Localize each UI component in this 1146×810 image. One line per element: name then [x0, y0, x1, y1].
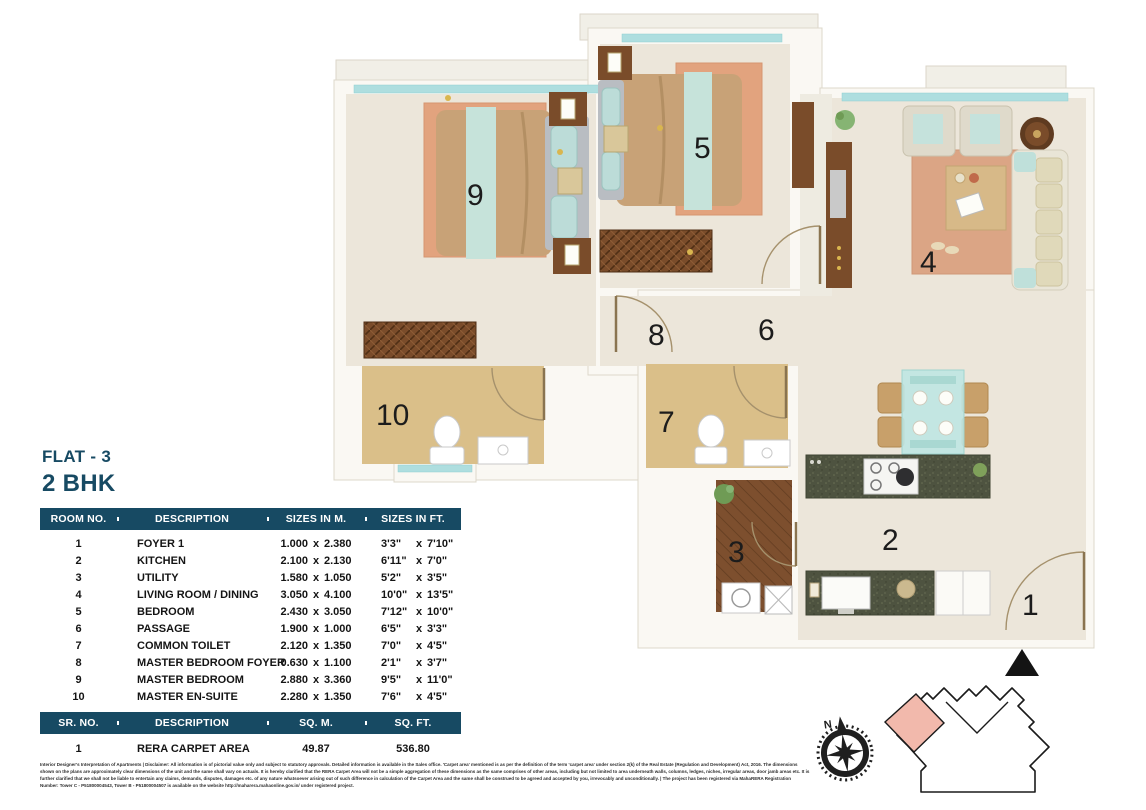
x-separator: x — [411, 555, 427, 567]
cell-description: LIVING ROOM / DINING — [117, 589, 267, 601]
room-label-master-ensuite: 10 — [376, 399, 409, 432]
room-label-bedroom: 5 — [694, 132, 711, 165]
x-separator: x — [308, 572, 324, 584]
cell-description: COMMON TOILET — [117, 640, 267, 652]
floor-plan-page: 9 5 4 8 6 10 7 2 3 1 N — [0, 0, 1146, 810]
cell-room-no: 7 — [40, 640, 117, 652]
x-separator: x — [411, 623, 427, 635]
x-separator: x — [308, 640, 324, 652]
cell-m1: 1.900 — [272, 623, 308, 635]
cell-f2: 3'7" — [427, 657, 461, 669]
cell-description: PASSAGE — [117, 623, 267, 635]
dining-set — [878, 370, 988, 454]
disclaimer-line: Interior Designer's Interpretation of Ap… — [40, 761, 1110, 768]
flat-type-label: 2 BHK — [42, 470, 116, 498]
x-separator: x — [308, 589, 324, 601]
cell-m2: 1.350 — [324, 691, 360, 703]
cell-description: MASTER BEDROOM FOYER — [117, 657, 267, 669]
cell-sr-no: 1 — [40, 743, 117, 755]
cell-f1: 7'12" — [381, 606, 411, 618]
room-label-master-bedroom: 9 — [467, 179, 484, 212]
cell-m2: 1.100 — [324, 657, 360, 669]
cell-sq-ft: 536.80 — [365, 743, 461, 755]
cell-f2: 3'3" — [427, 623, 461, 635]
x-separator: x — [308, 538, 324, 550]
table-row: 1 RERA CARPET AREA 49.87 536.80 — [40, 739, 461, 759]
x-separator: x — [308, 657, 324, 669]
area-table-body: 1 RERA CARPET AREA 49.87 536.80 — [40, 739, 461, 759]
room-label-utility: 3 — [728, 536, 745, 569]
cell-f2: 4'5" — [427, 640, 461, 652]
header-sr-no: SR. NO. — [40, 717, 117, 729]
cell-f1: 7'6" — [381, 691, 411, 703]
x-separator: x — [308, 606, 324, 618]
cell-room-no: 1 — [40, 538, 117, 550]
cell-f2: 11'0" — [427, 674, 461, 686]
cell-m2: 3.050 — [324, 606, 360, 618]
cell-sq-m: 49.87 — [267, 743, 365, 755]
cell-description: FOYER 1 — [117, 538, 267, 550]
compass-north-label: N — [823, 719, 833, 732]
table-row: 5 BEDROOM 2.430x3.050 7'12"x10'0" — [40, 603, 461, 620]
master-bed — [424, 92, 591, 274]
cell-f2: 4'5" — [427, 691, 461, 703]
cell-area-description: RERA CARPET AREA — [117, 743, 267, 755]
x-separator: x — [411, 538, 427, 550]
cell-m1: 1.000 — [272, 538, 308, 550]
cell-m1: 2.430 — [272, 606, 308, 618]
cell-m2: 4.100 — [324, 589, 360, 601]
rooms-table-body: 1 FOYER 1 1.000x2.380 3'3"x7'10" 2 KITCH… — [40, 535, 461, 705]
table-row: 7 COMMON TOILET 2.120x1.350 7'0"x4'5" — [40, 637, 461, 654]
cell-m1: 2.880 — [272, 674, 308, 686]
cell-f2: 10'0" — [427, 606, 461, 618]
cell-f1: 3'3" — [381, 538, 411, 550]
cell-m2: 3.360 — [324, 674, 360, 686]
header-area-description: DESCRIPTION — [117, 717, 267, 729]
table-row: 4 LIVING ROOM / DINING 3.050x4.100 10'0"… — [40, 586, 461, 603]
header-description: DESCRIPTION — [117, 513, 267, 525]
cell-f1: 9'5" — [381, 674, 411, 686]
x-separator: x — [411, 691, 427, 703]
cell-description: UTILITY — [117, 572, 267, 584]
rooms-table: ROOM NO. DESCRIPTION SIZES IN M. SIZES I… — [40, 508, 461, 705]
cell-room-no: 5 — [40, 606, 117, 618]
cell-m1: 2.280 — [272, 691, 308, 703]
table-row: 1 FOYER 1 1.000x2.380 3'3"x7'10" — [40, 535, 461, 552]
x-separator: x — [411, 640, 427, 652]
cell-f1: 10'0" — [381, 589, 411, 601]
header-sizes-ft: SIZES IN FT. — [365, 513, 461, 525]
area-table-header: SR. NO. DESCRIPTION SQ. M. SQ. FT. — [40, 712, 461, 734]
cell-room-no: 9 — [40, 674, 117, 686]
cell-m2: 1.050 — [324, 572, 360, 584]
cell-m2: 2.380 — [324, 538, 360, 550]
cell-room-no: 8 — [40, 657, 117, 669]
room-label-common-toilet: 7 — [658, 406, 675, 439]
table-row: 10 MASTER EN-SUITE 2.280x1.350 7'6"x4'5" — [40, 688, 461, 705]
flat-title-block: FLAT - 3 2 BHK — [42, 447, 116, 498]
header-sq-m: SQ. M. — [267, 717, 365, 729]
flat-number-label: FLAT - 3 — [42, 447, 116, 467]
cell-f2: 7'0" — [427, 555, 461, 567]
rooms-table-header: ROOM NO. DESCRIPTION SIZES IN M. SIZES I… — [40, 508, 461, 530]
disclaimer-line: Number: Tower C - P51800004543, Tower B … — [40, 782, 1110, 789]
table-row: 8 MASTER BEDROOM FOYER 0.630x1.100 2'1"x… — [40, 654, 461, 671]
cell-m2: 1.350 — [324, 640, 360, 652]
cell-m1: 2.120 — [272, 640, 308, 652]
room-label-living: 4 — [920, 246, 937, 279]
disclaimer-text: Interior Designer's Interpretation of Ap… — [40, 761, 1110, 789]
disclaimer-line: further clarified that we shall not be l… — [40, 775, 1110, 782]
cell-f2: 7'10" — [427, 538, 461, 550]
cell-description: BEDROOM — [117, 606, 267, 618]
cell-f1: 5'2" — [381, 572, 411, 584]
cell-m1: 2.100 — [272, 555, 308, 567]
disclaimer-line: shown on the plans are approximately cle… — [40, 768, 1110, 775]
room-label-master-foyer: 8 — [648, 319, 665, 352]
table-row: 2 KITCHEN 2.100x2.130 6'11"x7'0" — [40, 552, 461, 569]
header-sizes-m: SIZES IN M. — [267, 513, 365, 525]
room-label-kitchen: 2 — [882, 524, 899, 557]
cell-f1: 2'1" — [381, 657, 411, 669]
cell-m1: 3.050 — [272, 589, 308, 601]
table-row: 6 PASSAGE 1.900x1.000 6'5"x3'3" — [40, 620, 461, 637]
cell-description: MASTER BEDROOM — [117, 674, 267, 686]
cell-f1: 7'0" — [381, 640, 411, 652]
x-separator: x — [308, 674, 324, 686]
cell-room-no: 6 — [40, 623, 117, 635]
header-room-no: ROOM NO. — [40, 513, 117, 525]
room-label-passage: 6 — [758, 314, 775, 347]
x-separator: x — [308, 555, 324, 567]
carpet-area-table: SR. NO. DESCRIPTION SQ. M. SQ. FT. 1 RER… — [40, 712, 461, 759]
cell-f2: 13'5" — [427, 589, 461, 601]
x-separator: x — [411, 589, 427, 601]
x-separator: x — [411, 606, 427, 618]
cell-f2: 3'5" — [427, 572, 461, 584]
entry-arrow-icon — [1005, 649, 1039, 676]
cell-description: KITCHEN — [117, 555, 267, 567]
cell-m1: 0.630 — [272, 657, 308, 669]
cell-m2: 1.000 — [324, 623, 360, 635]
table-row: 3 UTILITY 1.580x1.050 5'2"x3'5" — [40, 569, 461, 586]
cell-room-no: 2 — [40, 555, 117, 567]
x-separator: x — [411, 572, 427, 584]
cell-room-no: 4 — [40, 589, 117, 601]
cell-room-no: 3 — [40, 572, 117, 584]
cell-m2: 2.130 — [324, 555, 360, 567]
x-separator: x — [308, 691, 324, 703]
table-row: 9 MASTER BEDROOM 2.880x3.360 9'5"x11'0" — [40, 671, 461, 688]
cell-description: MASTER EN-SUITE — [117, 691, 267, 703]
cell-m1: 1.580 — [272, 572, 308, 584]
cell-room-no: 10 — [40, 691, 117, 703]
cell-f1: 6'5" — [381, 623, 411, 635]
room-label-foyer: 1 — [1022, 589, 1039, 622]
header-sq-ft: SQ. FT. — [365, 717, 461, 729]
x-separator: x — [411, 657, 427, 669]
cell-f1: 6'11" — [381, 555, 411, 567]
x-separator: x — [411, 674, 427, 686]
x-separator: x — [308, 623, 324, 635]
